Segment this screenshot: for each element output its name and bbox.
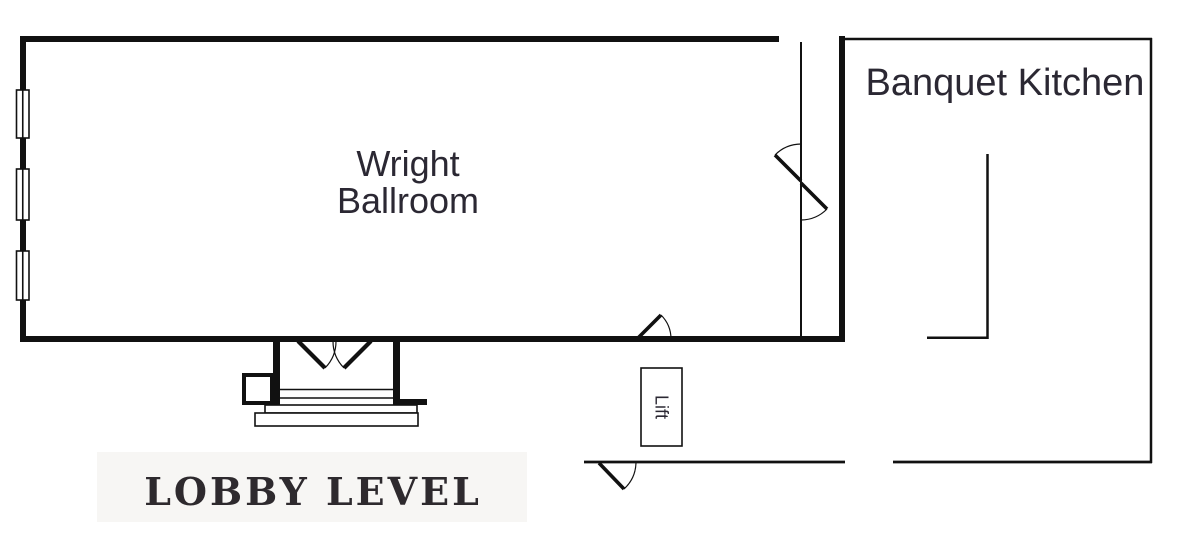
- vestibule-pier: [244, 375, 272, 403]
- door-swing-arc: [333, 341, 344, 368]
- vestibule-right-wall: [393, 342, 400, 405]
- vestibule-left-wall: [273, 342, 280, 405]
- ballroom-label-line1: Wright: [356, 143, 459, 184]
- ballroom-top-wall: [20, 36, 779, 42]
- vestibule-right-foot-wall: [400, 399, 427, 405]
- door-leaf: [298, 341, 325, 368]
- corridor-walls: [584, 462, 1152, 489]
- ballroom-right-wall: [839, 36, 845, 342]
- door-leaf: [344, 341, 371, 368]
- door-leaf: [637, 315, 661, 339]
- window-symbol-1: [17, 90, 30, 138]
- ballroom-east-partition-wall: [800, 42, 802, 336]
- door-swing-arc: [801, 209, 827, 220]
- door-swing-arc: [624, 463, 636, 489]
- door-swing-arc: [775, 144, 801, 155]
- door-leaf: [775, 155, 801, 181]
- ballroom-label-line2: Ballroom: [337, 180, 479, 221]
- door-leaf: [801, 183, 827, 209]
- door-swing-arc: [661, 315, 671, 339]
- ballroom-bottom-wall: [20, 336, 845, 342]
- entrance-double-door: [298, 341, 371, 368]
- level-title-block: LOBBY LEVEL: [97, 452, 527, 522]
- entrance-vestibule: [244, 341, 427, 426]
- floor-plan-canvas: Lift Wright Ballroom Banquet Kitchen LOB…: [0, 0, 1189, 534]
- lift-label: Lift: [652, 395, 672, 419]
- door-leaf: [599, 463, 624, 489]
- corridor-door: [599, 463, 636, 489]
- lift-shaft: Lift: [641, 368, 682, 446]
- level-title-text: LOBBY LEVEL: [144, 469, 482, 514]
- window-symbol-3: [17, 251, 30, 300]
- door-swing-arc: [325, 341, 336, 368]
- west-windows: [17, 90, 30, 300]
- floor-plan-drawing: Lift Wright Ballroom Banquet Kitchen LOB…: [0, 0, 1189, 534]
- entry-step-lower: [255, 413, 418, 426]
- entry-step-upper: [265, 405, 417, 413]
- window-symbol-2: [17, 169, 30, 220]
- ballroom-south-door: [637, 315, 671, 339]
- kitchen-label: Banquet Kitchen: [866, 62, 1145, 104]
